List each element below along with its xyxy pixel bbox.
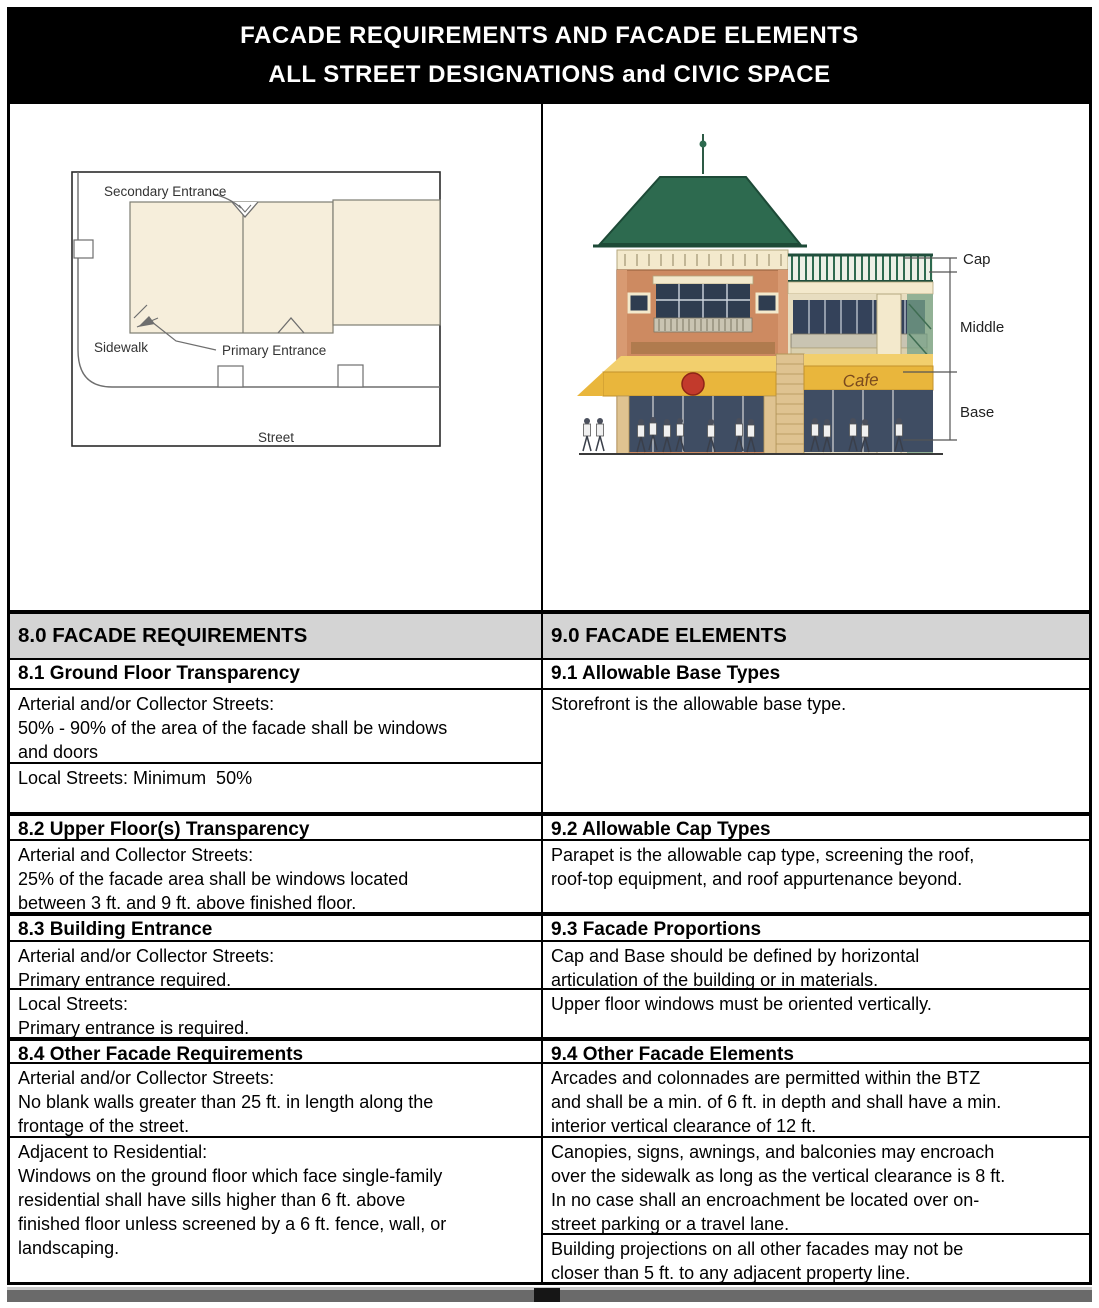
- heading-9-2: 9.2 Allowable Cap Types: [543, 814, 1089, 841]
- bottom-bar-notch: [534, 1288, 560, 1302]
- heading-9-1: 9.1 Allowable Base Types: [543, 660, 1089, 690]
- cell-9-4-canopies: Canopies, signs, awnings, and balconies …: [543, 1138, 1089, 1235]
- heading-8-2: 8.2 Upper Floor(s) Transparency: [10, 814, 541, 841]
- building-footprint-wing: [333, 200, 440, 325]
- primary-entrance-label: Primary Entrance: [222, 343, 326, 358]
- tower-roof: [600, 177, 800, 244]
- cell-8-2-arterial: Arterial and Collector Streets: 25% of t…: [10, 841, 541, 914]
- cell-8-3-local: Local Streets: Primary entrance is requi…: [10, 990, 541, 1039]
- page-title-line2: ALL STREET DESIGNATIONS and CIVIC SPACE: [268, 61, 830, 89]
- heading-8-4: 8.4 Other Facade Requirements: [10, 1039, 541, 1064]
- facade-sketch-figure: Cafe: [543, 104, 1089, 610]
- building-footprint-main: [130, 202, 333, 333]
- cell-9-3-windows: Upper floor windows must be oriented ver…: [543, 990, 1089, 1039]
- facade-sketch-svg: Cafe: [543, 104, 1089, 610]
- awning-left-top: [603, 356, 776, 372]
- cell-8-1-local: Local Streets: Minimum 50%: [10, 764, 541, 814]
- cell-9-2-parapet: Parapet is the allowable cap type, scree…: [543, 841, 1089, 914]
- street-label: Street: [258, 430, 294, 445]
- cell-8-1-arterial: Arterial and/or Collector Streets: 50% -…: [10, 690, 541, 764]
- requirements-table: 8.0 FACADE REQUIREMENTS 8.1 Ground Floor…: [10, 614, 1089, 1282]
- cell-8-4-residential: Adjacent to Residential: Windows on the …: [10, 1138, 541, 1282]
- document-page: FACADE REQUIREMENTS AND FACADE ELEMENTS …: [0, 0, 1099, 1308]
- page-title-line1: FACADE REQUIREMENTS AND FACADE ELEMENTS: [240, 22, 859, 50]
- cell-9-1-storefront: Storefront is the allowable base type.: [543, 690, 1089, 814]
- storefront-right: [804, 390, 933, 452]
- site-plan-figure: Secondary Entrance Sidewalk Primary Entr…: [10, 104, 543, 610]
- cell-9-4-arcades: Arcades and colonnades are permitted wit…: [543, 1064, 1089, 1138]
- middle-label: Middle: [960, 319, 1004, 336]
- cell-8-3-arterial: Arterial and/or Collector Streets: Prima…: [10, 942, 541, 990]
- page-header: FACADE REQUIREMENTS AND FACADE ELEMENTS …: [7, 7, 1092, 104]
- cell-8-4-arterial: Arterial and/or Collector Streets: No bl…: [10, 1064, 541, 1138]
- heading-9-3: 9.3 Facade Proportions: [543, 914, 1089, 942]
- table-header-8-0: 8.0 FACADE REQUIREMENTS: [10, 614, 541, 660]
- heading-8-3: 8.3 Building Entrance: [10, 914, 541, 942]
- content-frame: Secondary Entrance Sidewalk Primary Entr…: [7, 104, 1092, 1285]
- base-label: Base: [960, 404, 994, 421]
- secondary-entrance-label: Secondary Entrance: [104, 184, 226, 199]
- table-header-9-0: 9.0 FACADE ELEMENTS: [543, 614, 1089, 660]
- facade-requirements-column: 8.0 FACADE REQUIREMENTS 8.1 Ground Floor…: [10, 614, 543, 1282]
- cell-9-4-projections: Building projections on all other facade…: [543, 1235, 1089, 1282]
- facade-elements-column: 9.0 FACADE ELEMENTS 9.1 Allowable Base T…: [543, 614, 1089, 1282]
- figures-row: Secondary Entrance Sidewalk Primary Entr…: [10, 104, 1089, 614]
- heading-9-4: 9.4 Other Facade Elements: [543, 1039, 1089, 1064]
- cap-label: Cap: [963, 251, 991, 268]
- cell-9-3-capbase: Cap and Base should be defined by horizo…: [543, 942, 1089, 990]
- heading-8-1: 8.1 Ground Floor Transparency: [10, 660, 541, 690]
- site-plan-svg: Secondary Entrance Sidewalk Primary Entr…: [10, 104, 541, 610]
- cafe-sign-text: Cafe: [842, 370, 879, 391]
- awning-logo: [682, 373, 704, 395]
- sidewalk-label: Sidewalk: [94, 340, 148, 355]
